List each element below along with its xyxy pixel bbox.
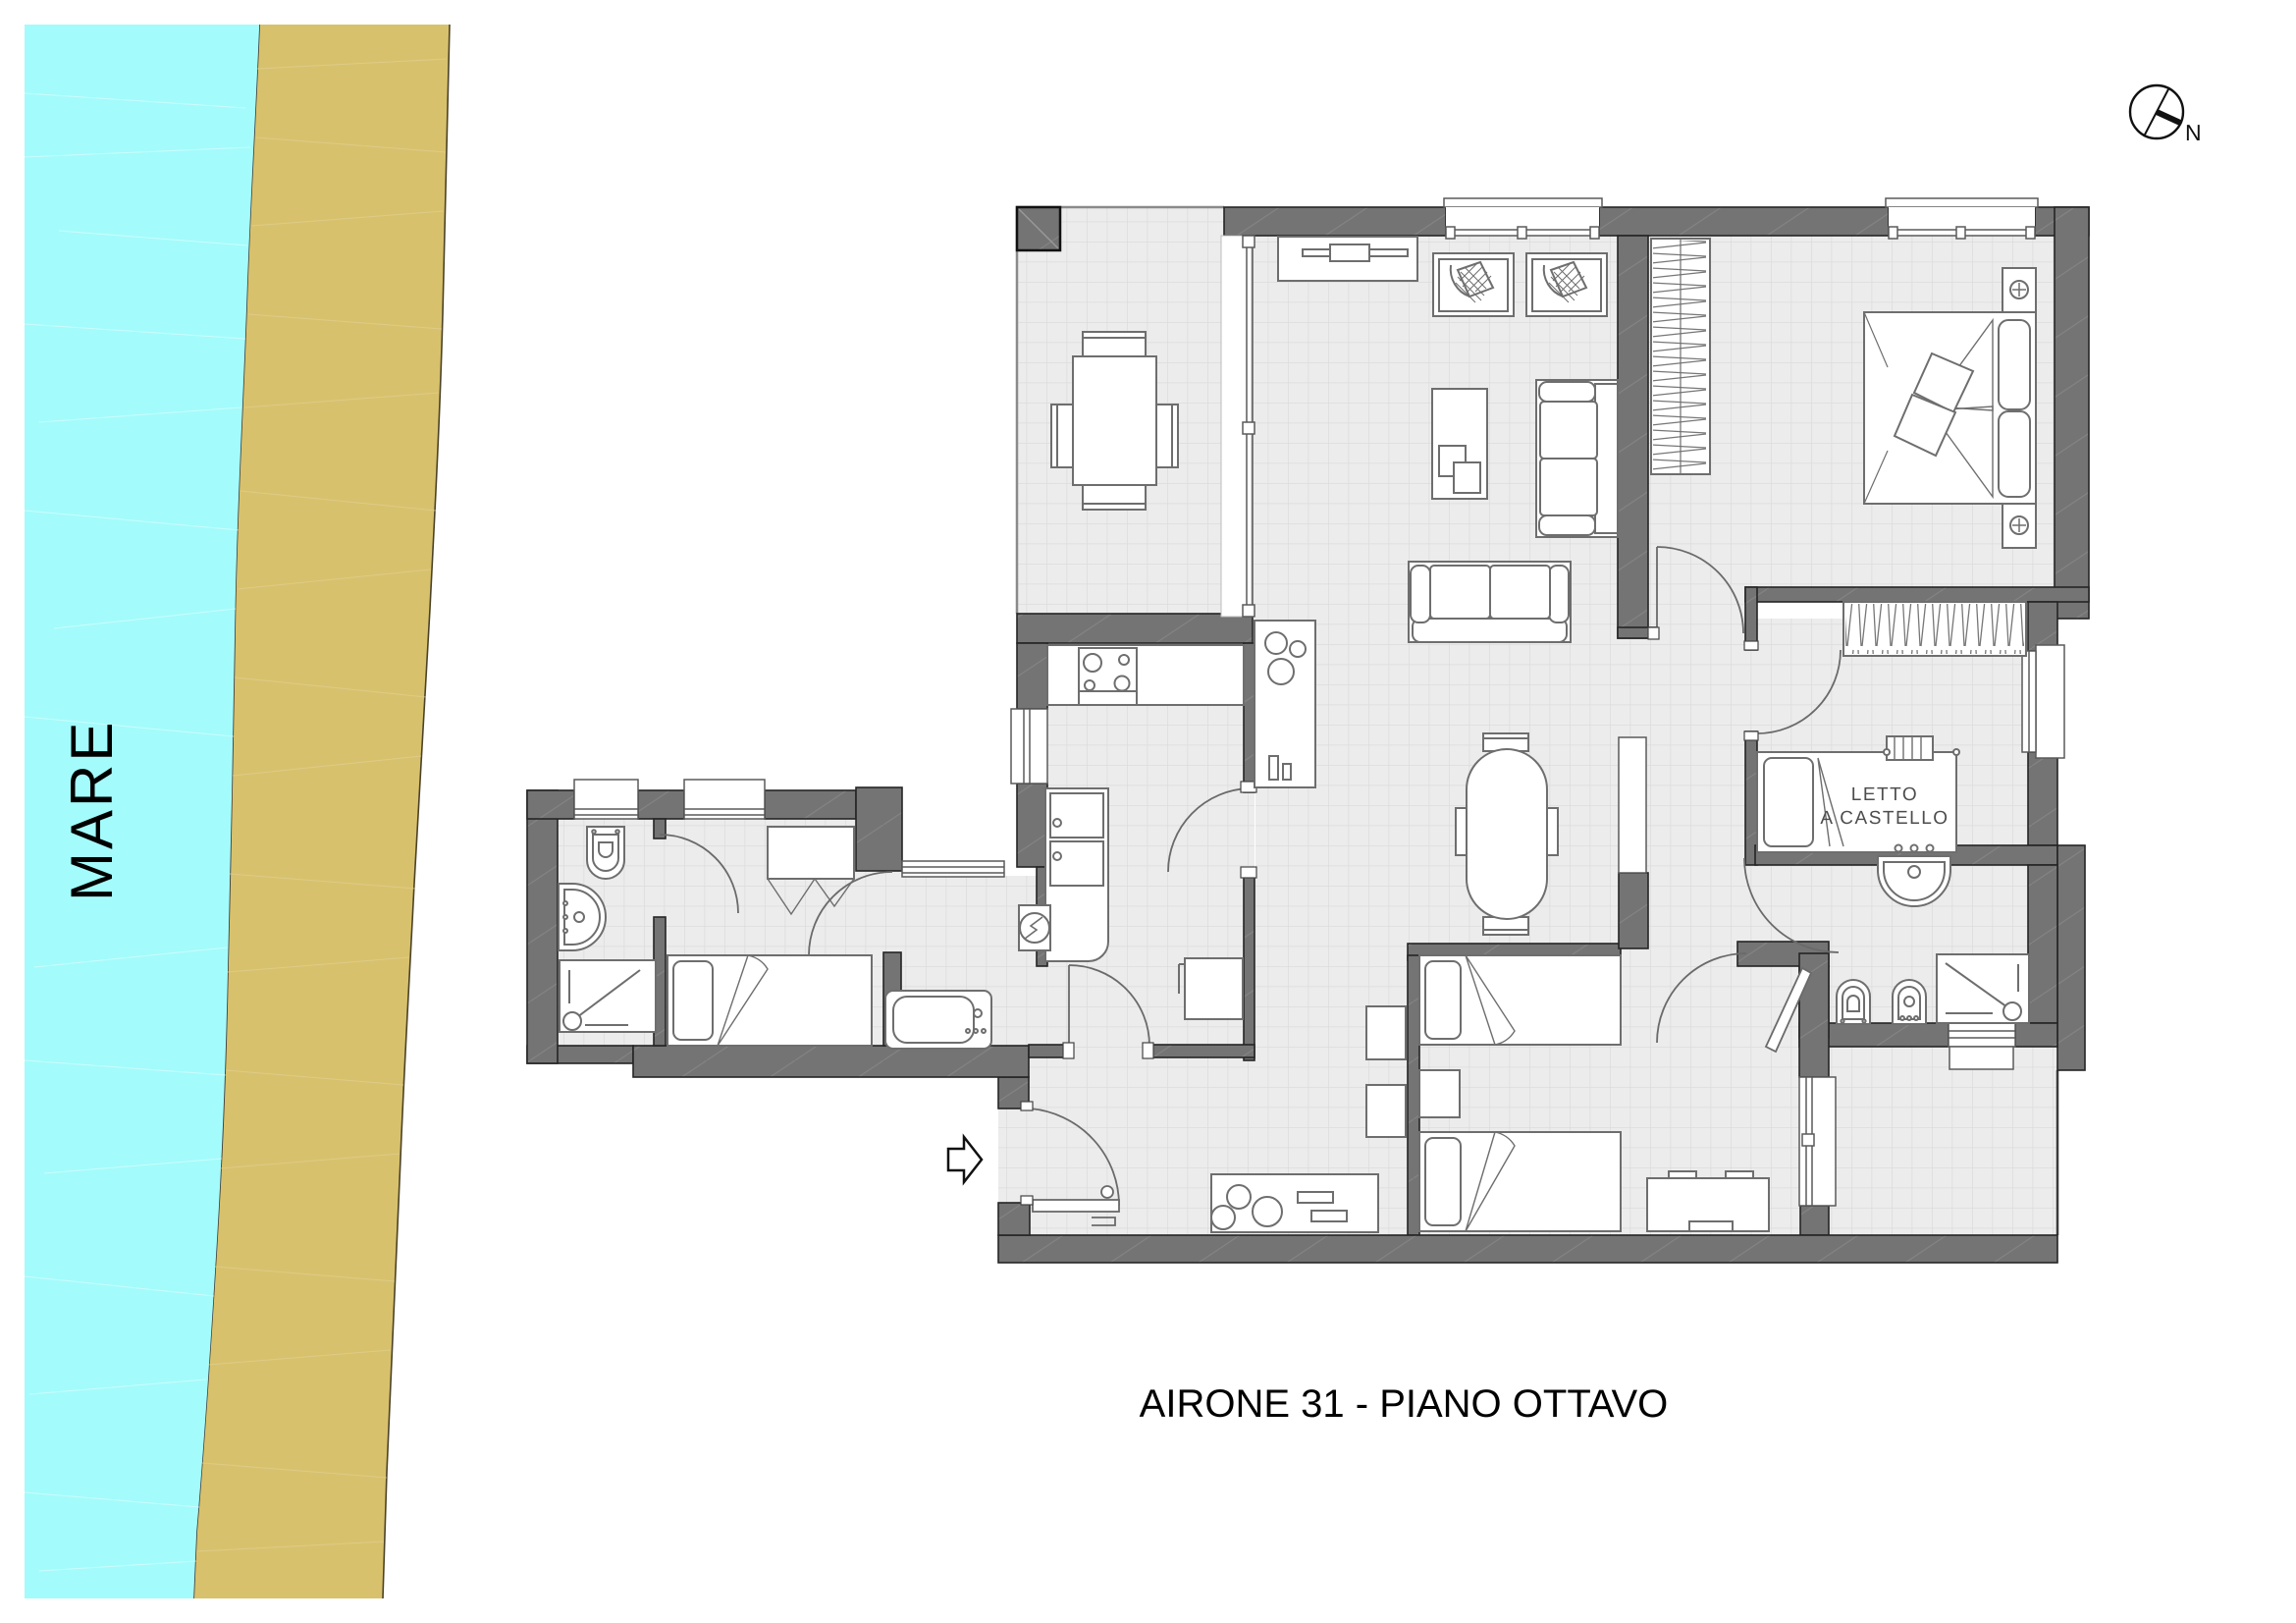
svg-text:N: N (2185, 120, 2202, 145)
svg-text:MARE: MARE (59, 720, 125, 901)
svg-text:AIRONE 31 - PIANO OTTAVO: AIRONE 31 - PIANO OTTAVO (1140, 1382, 1669, 1426)
svg-text:LETTO: LETTO (1851, 784, 1918, 805)
svg-text:A CASTELLO: A CASTELLO (1820, 808, 1949, 829)
